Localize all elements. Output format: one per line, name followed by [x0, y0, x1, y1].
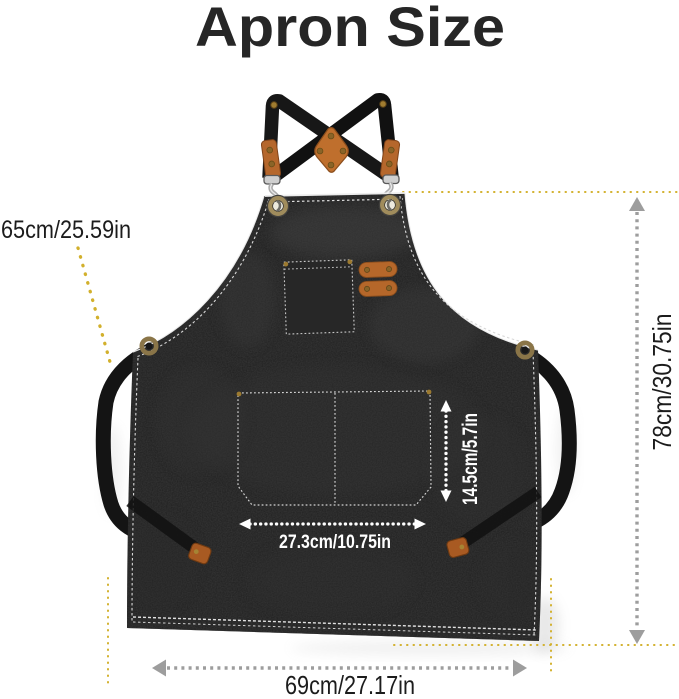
svg-text:Apron Size: Apron Size — [195, 0, 505, 58]
svg-text:69cm/27.17in: 69cm/27.17in — [285, 670, 415, 699]
svg-text:27.3cm/10.75in: 27.3cm/10.75in — [279, 532, 391, 553]
svg-text:14.5cm/5.7in: 14.5cm/5.7in — [459, 413, 482, 505]
svg-text:78cm/30.75in: 78cm/30.75in — [647, 314, 677, 451]
svg-text:65cm/25.59in: 65cm/25.59in — [1, 216, 131, 244]
